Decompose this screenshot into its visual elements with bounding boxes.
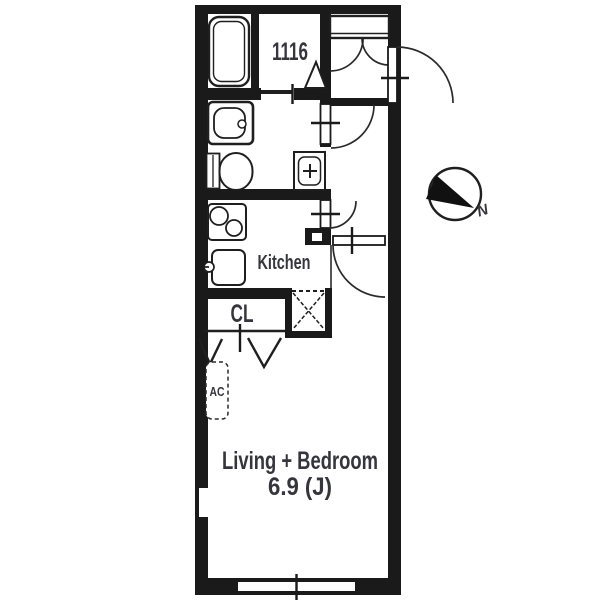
pipe-space-box: [285, 288, 332, 338]
toilet-bowl: [220, 153, 253, 190]
shoe-storage-box: [330, 16, 389, 38]
kitchen-label: Kitchen: [258, 252, 311, 274]
kitchen-door: [311, 200, 356, 228]
front-door-leaf: [388, 47, 397, 103]
compass-north-label: N: [475, 201, 492, 221]
closet-label: CL: [231, 300, 254, 328]
kitchen-sink-icon: [203, 250, 245, 285]
wall-kitchen-bottom: [195, 288, 287, 299]
shoe-storage-arc-right: [362, 38, 389, 65]
ps-wall-bottom: [285, 331, 332, 338]
ps-wall-right: [325, 288, 332, 338]
closet-bifold-mark-right: [248, 338, 281, 367]
stove-burner-1: [210, 207, 228, 225]
bathtub-inner: [214, 22, 245, 82]
washroom-door: [311, 104, 374, 148]
window-left-wall: [199, 488, 208, 517]
wall-bath-divider: [251, 14, 259, 90]
floor-plan-image: AC 1116 Kitchen CL Living + Bedroom 6.9 …: [0, 0, 600, 600]
shoe-storage: [330, 16, 389, 71]
stove-burner-2: [226, 220, 242, 236]
wall-under-bath-right: [294, 88, 331, 100]
bath-size-label: 1116: [272, 38, 308, 66]
closet: [199, 324, 285, 367]
shoe-storage-arc-left: [330, 38, 363, 71]
wall-under-bath-left: [202, 88, 261, 100]
ac-label: AC: [210, 384, 225, 399]
washing-machine-pan-icon: [208, 102, 253, 144]
living-door: [333, 227, 385, 297]
living-door-arc: [333, 245, 385, 297]
washbasin-icon: [294, 152, 325, 190]
ps-wall-left: [285, 288, 292, 338]
bath-threshold-line: [261, 91, 292, 94]
stove-icon: [208, 204, 246, 240]
living-label: Living + Bedroom: [222, 447, 378, 475]
floor-plan-svg: AC 1116 Kitchen CL Living + Bedroom 6.9 …: [0, 0, 600, 600]
pan-drain: [238, 120, 246, 128]
wall-entry-corridor: [331, 98, 388, 106]
front-door-swing-arc: [397, 47, 453, 103]
toilet-icon: [207, 153, 253, 190]
ac-unit: AC: [206, 362, 228, 419]
bathtub-icon: [209, 17, 249, 86]
wall-top: [195, 5, 401, 14]
washroom-door-arc: [331, 105, 374, 148]
sink-basin: [212, 250, 245, 285]
living-area-label: 6.9 (J): [268, 473, 332, 501]
front-door: [381, 47, 453, 103]
living-door-leaf: [333, 236, 385, 245]
north-arrow-icon: N: [426, 168, 492, 221]
pillar-notch: [312, 233, 322, 241]
